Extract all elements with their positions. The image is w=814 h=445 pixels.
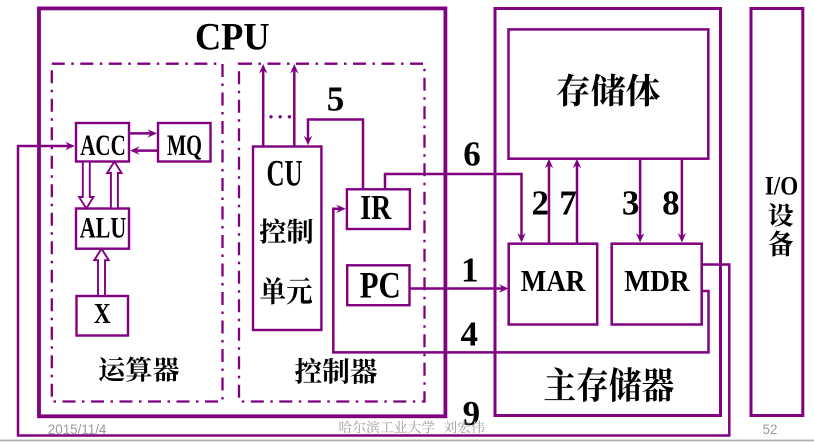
svg-text:1: 1: [461, 251, 479, 290]
svg-text:X: X: [94, 299, 111, 330]
svg-text:2015/11/4: 2015/11/4: [48, 422, 107, 437]
svg-text:IR: IR: [360, 189, 392, 227]
svg-text:MQ: MQ: [167, 129, 202, 162]
svg-text:5: 5: [327, 80, 345, 119]
svg-text:MDR: MDR: [624, 264, 690, 298]
svg-text:6: 6: [463, 135, 481, 174]
svg-text:CU: CU: [267, 153, 303, 194]
svg-text:MAR: MAR: [521, 264, 586, 298]
svg-text:9: 9: [463, 394, 481, 433]
svg-text:8: 8: [662, 184, 680, 223]
svg-text:2: 2: [532, 184, 550, 223]
svg-text:7: 7: [559, 184, 577, 223]
svg-text:52: 52: [763, 422, 778, 437]
svg-text:PC: PC: [360, 264, 401, 305]
svg-text:4: 4: [460, 315, 478, 354]
svg-text:ACC: ACC: [80, 129, 126, 162]
svg-text:I/O: I/O: [765, 171, 798, 201]
svg-text:3: 3: [622, 184, 640, 223]
svg-text:ALU: ALU: [80, 211, 127, 244]
svg-text:CPU: CPU: [195, 16, 270, 59]
